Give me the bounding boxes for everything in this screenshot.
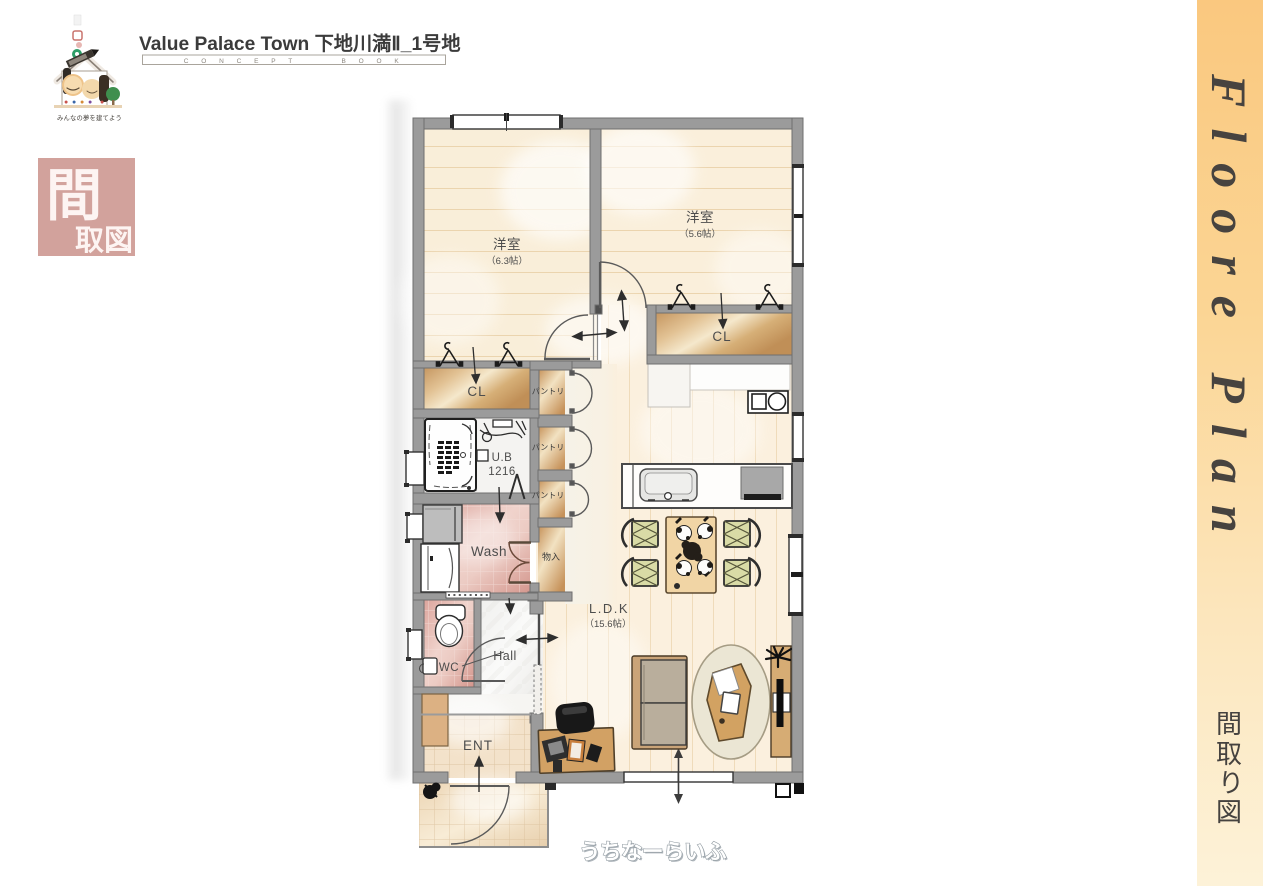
svg-text:●: ●: [72, 99, 76, 106]
svg-text:取図: 取図: [75, 225, 133, 257]
svg-text:物入: 物入: [542, 551, 560, 562]
svg-text:間: 間: [1216, 709, 1242, 739]
svg-text:CL: CL: [712, 329, 731, 344]
svg-text:●: ●: [100, 99, 104, 106]
svg-text:1216: 1216: [488, 466, 516, 478]
svg-text:ENT: ENT: [463, 738, 493, 753]
svg-text:Value Palace Town 下地川満Ⅱ_1号地: Value Palace Town 下地川満Ⅱ_1号地: [139, 32, 461, 55]
svg-text:パントリ: パントリ: [532, 491, 564, 500]
svg-text:パントリ: パントリ: [532, 443, 564, 452]
svg-text:洋室: 洋室: [493, 236, 521, 252]
svg-text:●: ●: [80, 99, 84, 106]
svg-text:●: ●: [88, 99, 92, 106]
svg-text:パントリ: パントリ: [532, 387, 564, 396]
svg-text:洋室: 洋室: [686, 209, 714, 225]
svg-text:Wash: Wash: [471, 544, 507, 559]
svg-text:WC: WC: [439, 662, 459, 674]
svg-text:●: ●: [64, 99, 68, 106]
svg-text:U.B: U.B: [492, 452, 513, 464]
svg-text:（15.6帖）: （15.6帖）: [585, 618, 632, 630]
svg-text:Hall: Hall: [493, 649, 517, 663]
svg-text:うちなーらいふ: うちなーらいふ: [579, 840, 727, 864]
svg-text:Floore Plan: Floore Plan: [1201, 73, 1257, 554]
svg-text:CL: CL: [467, 384, 486, 399]
svg-text:（6.3帖）: （6.3帖）: [486, 255, 528, 267]
svg-text:取: 取: [1216, 739, 1242, 769]
svg-text:（5.6帖）: （5.6帖）: [679, 228, 721, 240]
svg-text:り: り: [1218, 768, 1244, 798]
svg-text:L.D.K: L.D.K: [589, 601, 629, 616]
svg-text:図: 図: [1216, 797, 1242, 827]
svg-text:みんなの夢を建てよう: みんなの夢を建てよう: [57, 113, 122, 122]
svg-text:間: 間: [46, 164, 102, 227]
svg-text:C O N C E P T B O O K: C O N C E P T B O O K: [184, 58, 404, 65]
